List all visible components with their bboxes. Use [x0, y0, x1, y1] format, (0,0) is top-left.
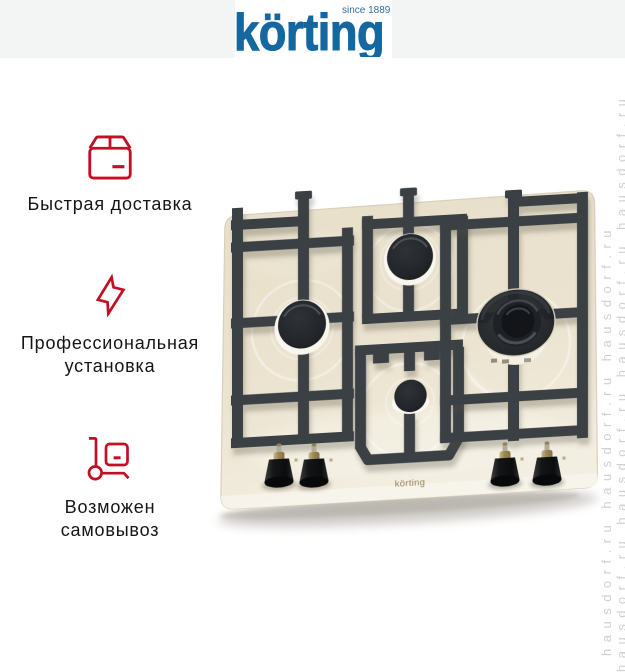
svg-text:körting: körting — [395, 477, 426, 490]
